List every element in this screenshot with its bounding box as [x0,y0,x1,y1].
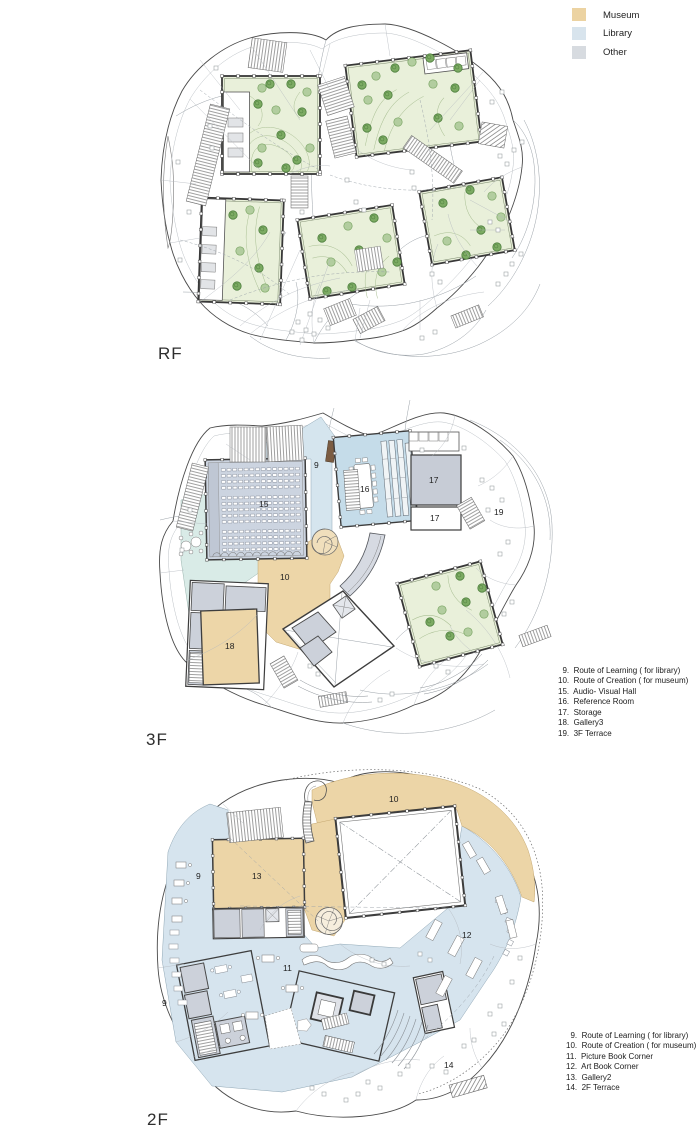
svg-text:16: 16 [360,484,370,494]
svg-text:18: 18 [225,641,235,651]
svg-text:14: 14 [444,1060,454,1070]
svg-text:15: 15 [259,499,269,509]
svg-text:11: 11 [283,963,292,973]
svg-text:17: 17 [429,475,439,485]
svg-text:12: 12 [462,930,472,940]
svg-text:9: 9 [162,998,167,1008]
svg-text:9: 9 [314,460,319,470]
svg-text:17: 17 [430,513,440,523]
svg-text:9: 9 [196,871,201,881]
svg-text:10: 10 [280,572,290,582]
svg-text:19: 19 [494,507,504,517]
svg-text:13: 13 [252,871,262,881]
svg-text:10: 10 [389,794,399,804]
